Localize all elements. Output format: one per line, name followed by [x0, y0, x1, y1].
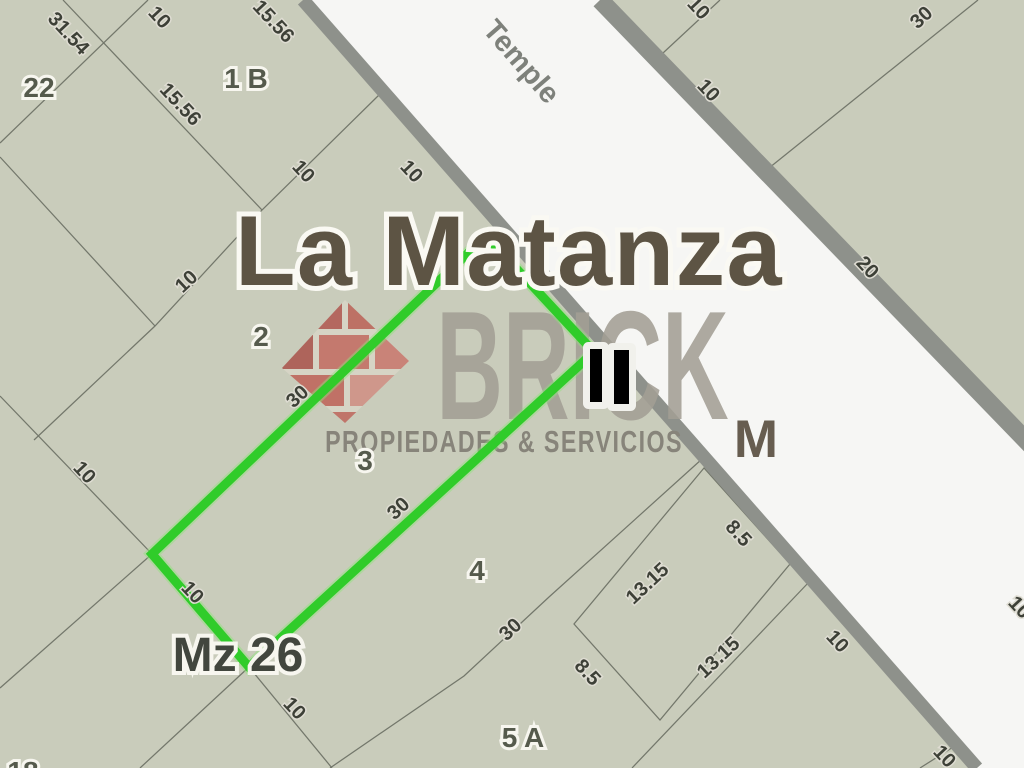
- svg-text:La Matanza: La Matanza: [235, 195, 783, 306]
- svg-text:2: 2: [253, 321, 269, 352]
- svg-text:3: 3: [357, 445, 373, 476]
- svg-text:4: 4: [469, 555, 485, 586]
- svg-text:18: 18: [7, 756, 38, 768]
- svg-text:M: M: [734, 410, 778, 469]
- svg-text:22: 22: [23, 72, 54, 103]
- svg-text:Mz 26: Mz 26: [173, 629, 304, 682]
- svg-text:5 A: 5 A: [502, 722, 545, 753]
- svg-text:1 B: 1 B: [224, 63, 268, 94]
